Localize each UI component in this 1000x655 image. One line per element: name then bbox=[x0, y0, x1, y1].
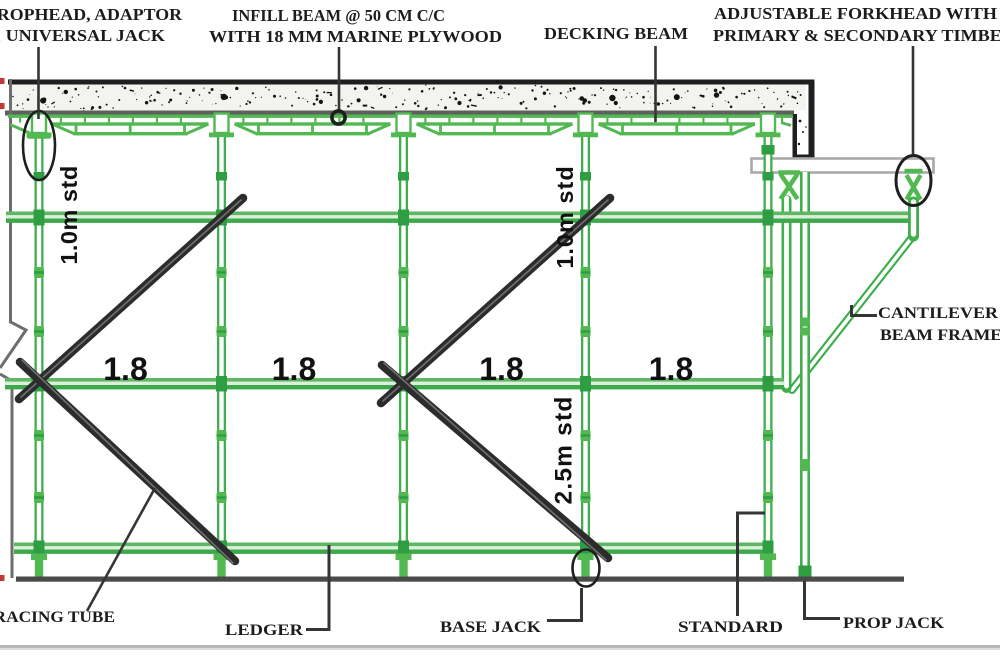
svg-text:BASE JACK: BASE JACK bbox=[440, 619, 542, 636]
svg-text:1.0m std: 1.0m std bbox=[56, 165, 82, 264]
svg-text:PROP JACK: PROP JACK bbox=[843, 615, 945, 632]
svg-text:DECKING BEAM: DECKING BEAM bbox=[544, 24, 688, 43]
svg-text:1.0m std: 1.0m std bbox=[552, 165, 578, 268]
svg-text:INFILL BEAM @ 50 CM C/C: INFILL BEAM @ 50 CM C/C bbox=[232, 6, 445, 25]
svg-text:DROPHEAD, ADAPTOR: DROPHEAD, ADAPTOR bbox=[0, 5, 183, 24]
svg-text:ADJUSTABLE FORKHEAD WITH: ADJUSTABLE FORKHEAD WITH bbox=[714, 4, 997, 23]
svg-text:BRACING TUBE: BRACING TUBE bbox=[0, 609, 115, 626]
svg-text:STANDARD: STANDARD bbox=[678, 619, 783, 636]
svg-text:1.8: 1.8 bbox=[272, 351, 316, 387]
svg-text:LEDGER: LEDGER bbox=[225, 622, 304, 639]
svg-text:WITH 18 MM MARINE PLYWOOD: WITH 18 MM MARINE PLYWOOD bbox=[209, 27, 502, 46]
svg-text:CANTILEVER: CANTILEVER bbox=[878, 305, 999, 322]
svg-text:1.8: 1.8 bbox=[103, 351, 147, 387]
svg-text:2.5m std: 2.5m std bbox=[551, 396, 578, 505]
svg-text:BEAM FRAME: BEAM FRAME bbox=[880, 327, 1000, 344]
svg-text:& UNIVERSAL JACK: & UNIVERSAL JACK bbox=[0, 26, 166, 45]
svg-text:PRIMARY & SECONDARY TIMBER: PRIMARY & SECONDARY TIMBER bbox=[713, 26, 1000, 45]
svg-text:1.8: 1.8 bbox=[479, 351, 523, 387]
svg-text:1.8: 1.8 bbox=[649, 351, 693, 387]
